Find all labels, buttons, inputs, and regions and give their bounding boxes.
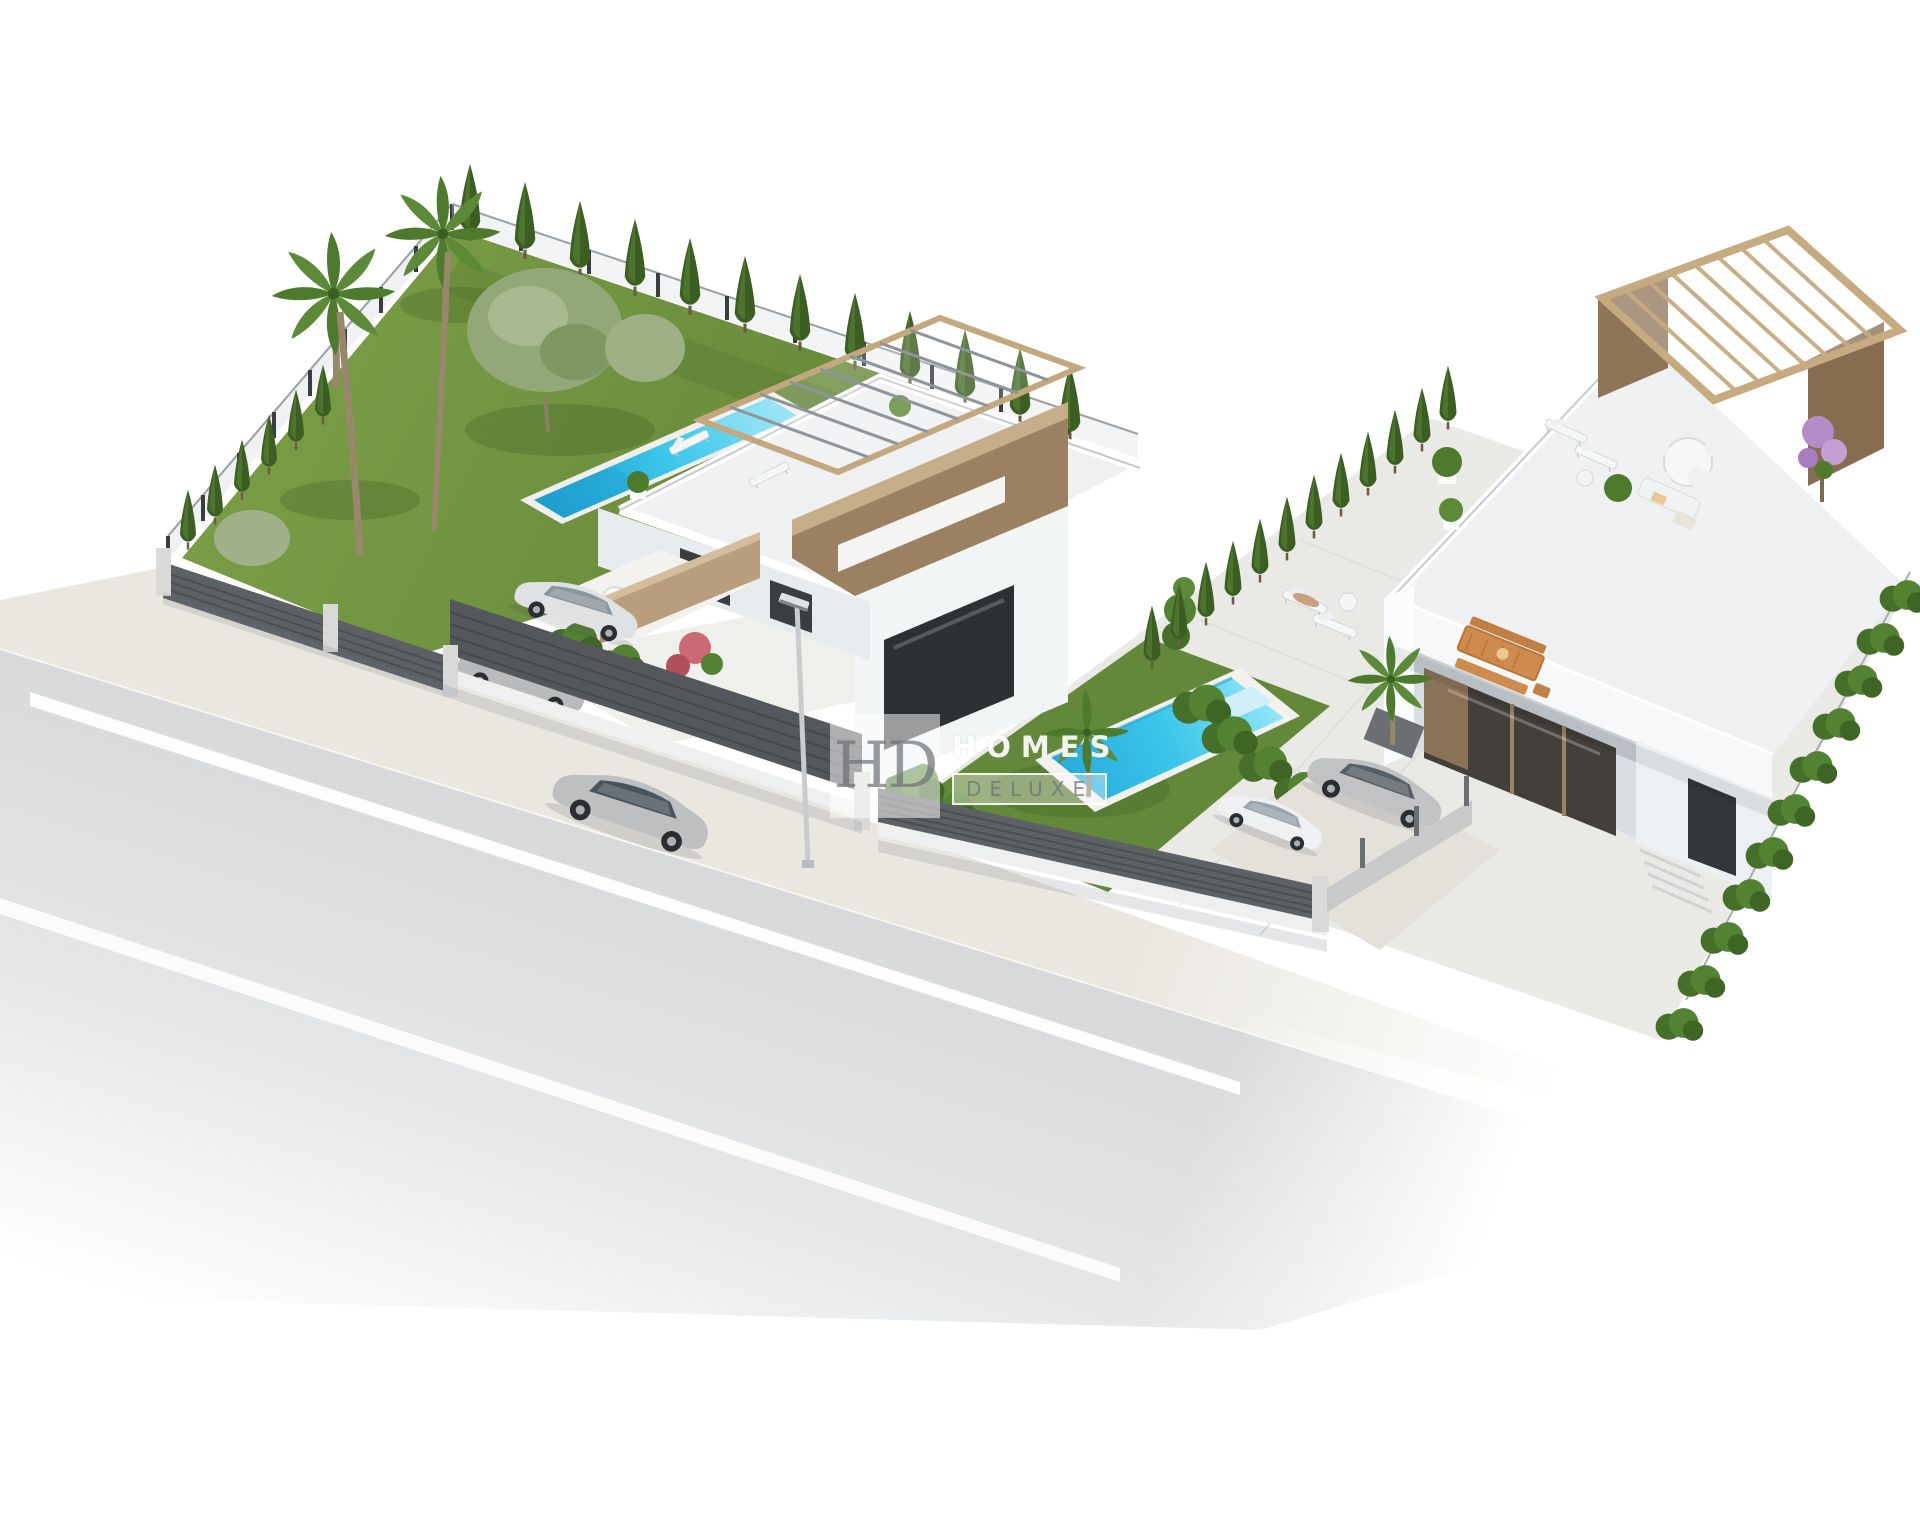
fence-corner-pillar [1312, 876, 1329, 932]
watermark-monogram: HD [830, 714, 940, 818]
watermark-title: HOMES [952, 730, 1120, 764]
watermark-subtitle: DELUXE [952, 773, 1107, 805]
watermark-text-block: HOMES DELUXE [952, 714, 1120, 818]
watermark: HD HOMES DELUXE [830, 714, 1120, 818]
silver-bush [214, 510, 290, 566]
render-stage: HD HOMES DELUXE [0, 0, 1920, 1538]
